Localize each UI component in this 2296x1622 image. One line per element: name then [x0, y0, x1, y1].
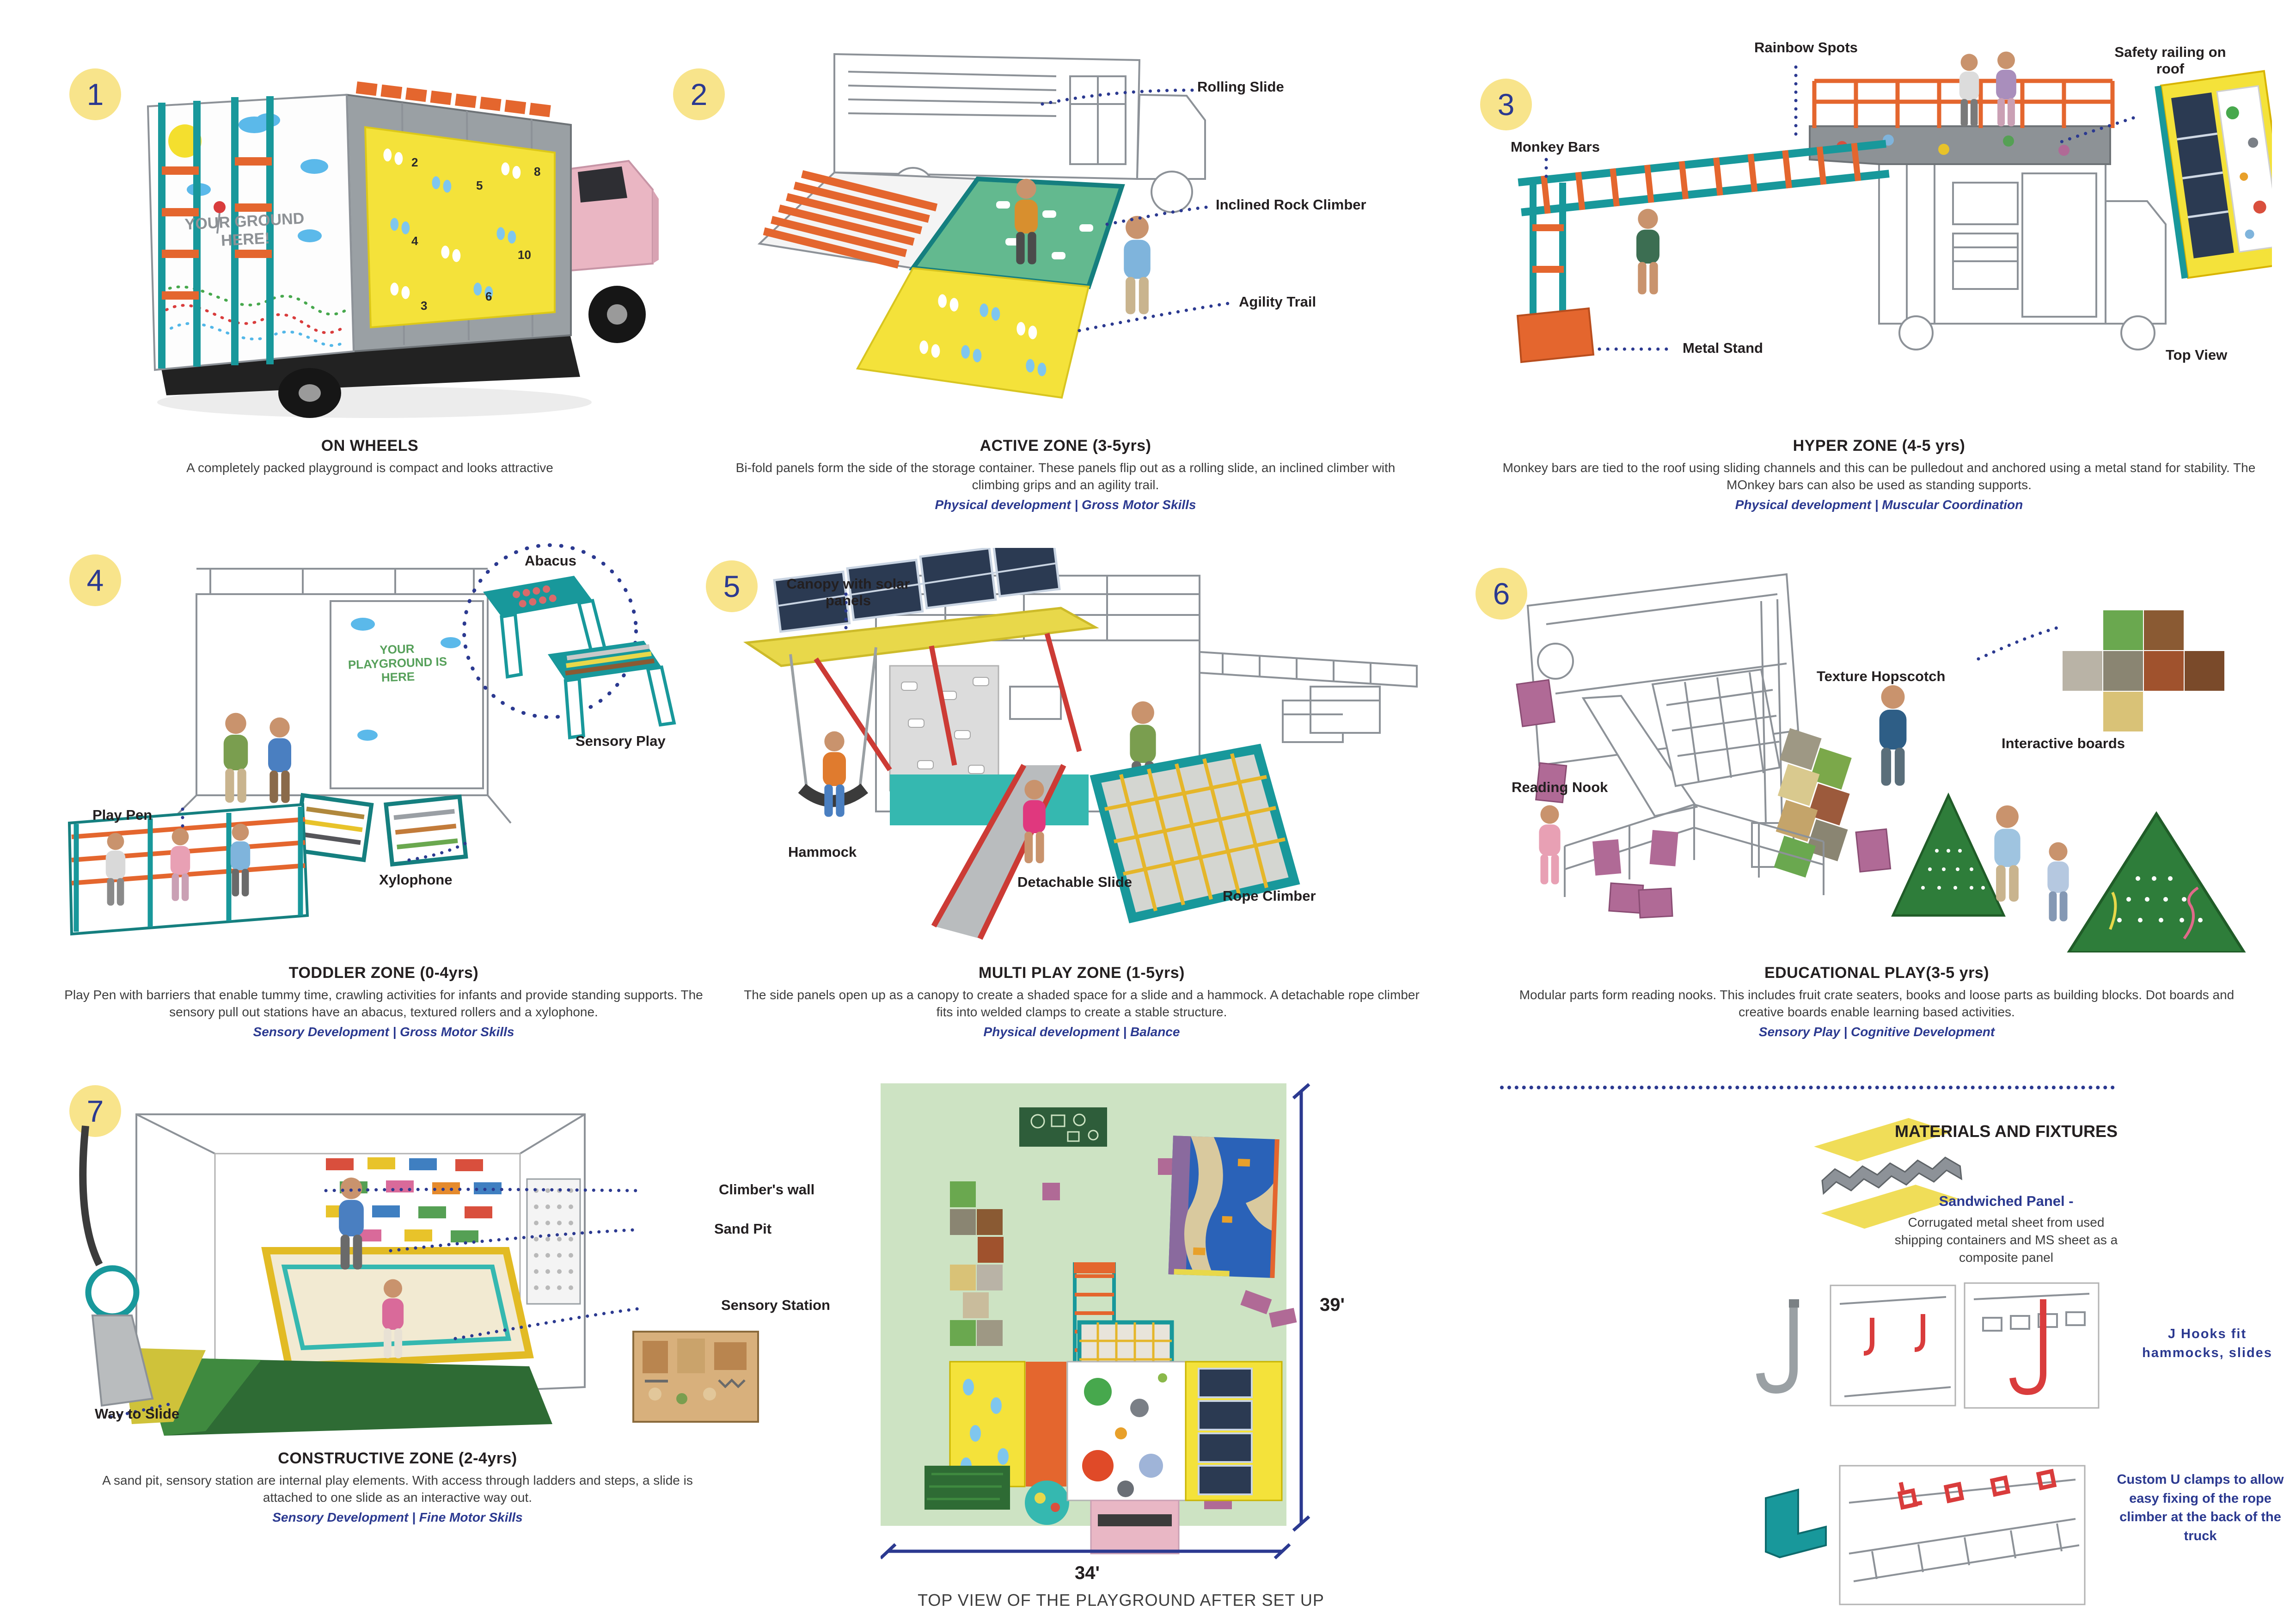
- child-in-nook: [1539, 805, 1560, 885]
- zone-skills: Physical development | Balance: [740, 1025, 1424, 1039]
- zone-description: Monkey bars are tied to the roof using s…: [1495, 460, 2263, 494]
- xylophone-table: [548, 638, 674, 739]
- hammock-strap: [83, 1126, 99, 1265]
- label-canopy-solar: Canopy with solar panels: [770, 576, 927, 609]
- materials-heading: MATERIALS AND FIXTURES: [1891, 1121, 2122, 1141]
- label-rainbow-spots: Rainbow Spots: [1754, 39, 1858, 56]
- label-xylophone: Xylophone: [379, 872, 452, 888]
- play-pen: [69, 805, 307, 934]
- toddler-figure: [2047, 842, 2069, 922]
- sandwiched-panel-desc: Corrugated metal sheet from used shippin…: [1886, 1214, 2126, 1266]
- label-play-pen: Play Pen: [92, 807, 152, 823]
- zone-title: HYPER ZONE (4-5 yrs): [1495, 437, 2263, 455]
- svg-text:5: 5: [476, 178, 483, 192]
- uclamps-note: Custom U clamps to allow easy fixing of …: [2112, 1470, 2288, 1545]
- label-detachable-slide: Detachable Slide: [1017, 874, 1133, 891]
- child-waving: [1994, 805, 2020, 902]
- dot-board-1: [1893, 795, 2004, 915]
- dotted-separator: [1500, 1086, 2115, 1089]
- truck-back-sign: YOUR GROUND HERE!: [184, 209, 306, 252]
- hyper-zone-illustration: [1491, 25, 2272, 432]
- active-zone-illustration: [719, 25, 1408, 428]
- leader-agility-trail: [1079, 303, 1232, 331]
- zone-description: A sand pit, sensory station are internal…: [83, 1472, 712, 1506]
- svg-text:8: 8: [534, 165, 540, 178]
- zone-title: EDUCATIONAL PLAY(3-5 yrs): [1500, 964, 2253, 982]
- label-safety-railing: Safety railing on roof: [2099, 44, 2242, 77]
- label-hammock: Hammock: [788, 844, 857, 860]
- balloon-graphic: [214, 201, 226, 213]
- label-rope-climber: Rope Climber: [1223, 888, 1316, 904]
- label-rolling-slide: Rolling Slide: [1197, 79, 1284, 95]
- child-running: [1880, 685, 1907, 786]
- leader-texture-hopscotch: [1978, 627, 2062, 659]
- truck-lineart: [159, 569, 511, 832]
- zone-title: TODDLER ZONE (0-4yrs): [44, 964, 723, 982]
- zone-description: Play Pen with barriers that enable tummy…: [44, 987, 723, 1021]
- label-top-view: Top View: [2166, 347, 2227, 363]
- zone-skills: Sensory Development | Fine Motor Skills: [83, 1510, 712, 1525]
- dot-board-2: [2069, 814, 2244, 952]
- svg-text:2: 2: [411, 155, 418, 169]
- truck-cab: [571, 161, 659, 343]
- label-agility-trail: Agility Trail: [1239, 294, 1316, 310]
- cab-topview: [1091, 1500, 1179, 1554]
- panel6-caption: EDUCATIONAL PLAY(3-5 yrs) Modular parts …: [1500, 964, 2253, 1039]
- top-view-mini: [2155, 71, 2272, 279]
- zone-skills: Physical development | Muscular Coordina…: [1495, 498, 2263, 512]
- sensory-pullout-boards: [295, 795, 465, 864]
- steps-lineart: [1283, 687, 1380, 742]
- label-monkey-bars: Monkey Bars: [1511, 139, 1600, 155]
- truck-lineart: [1879, 164, 2166, 350]
- label-metal-stand: Metal Stand: [1683, 340, 1763, 356]
- texture-swatches: [2063, 610, 2224, 731]
- zone-title: ACTIVE ZONE (3-5yrs): [723, 437, 1408, 455]
- panel4-caption: TODDLER ZONE (0-4yrs) Play Pen with barr…: [44, 964, 723, 1039]
- zone-title: ON WHEELS: [139, 437, 601, 455]
- label-abacus: Abacus: [525, 553, 576, 569]
- label-inclined-rock-climber: Inclined Rock Climber: [1216, 197, 1366, 213]
- label-texture-hopscotch: Texture Hopscotch: [1817, 668, 1945, 685]
- panel7-caption: CONSTRUCTIVE ZONE (2-4yrs) A sand pit, s…: [83, 1450, 712, 1525]
- detail-circle: [464, 545, 636, 717]
- panel5-caption: MULTI PLAY ZONE (1-5yrs) The side panels…: [740, 964, 1424, 1039]
- truck-side-sign: YOUR PLAYGROUND IS HERE: [342, 641, 454, 686]
- sensory-station-photo: [633, 1332, 758, 1422]
- zone-skills: Sensory Development | Gross Motor Skills: [44, 1025, 723, 1039]
- label-sensory-play: Sensory Play: [576, 733, 666, 750]
- zone-number: 1: [87, 77, 104, 112]
- zone-badge-1: 1: [69, 68, 121, 120]
- water-mat-topview: [1168, 1136, 1279, 1278]
- uclamp-icon: [1766, 1490, 1826, 1557]
- panel2-caption: ACTIVE ZONE (3-5yrs) Bi-fold panels form…: [723, 437, 1408, 512]
- svg-text:6: 6: [485, 289, 492, 303]
- svg-text:3: 3: [421, 299, 427, 313]
- child-on-slide: [1023, 780, 1046, 863]
- zone-description: Bi-fold panels form the side of the stor…: [723, 460, 1408, 494]
- zone-description: Modular parts form reading nooks. This i…: [1500, 987, 2253, 1021]
- child-figure: [1124, 216, 1151, 314]
- zone-description: The side panels open up as a canopy to c…: [740, 987, 1424, 1021]
- container-side-panel: 258 41036: [347, 95, 571, 351]
- svg-text:4: 4: [411, 234, 418, 248]
- label-interactive-boards: Interactive boards: [2002, 735, 2125, 752]
- label-climbers-wall: Climber's wall: [719, 1181, 814, 1198]
- uclamp-sketch: [1840, 1466, 2085, 1604]
- zone-skills: Sensory Play | Cognitive Development: [1500, 1025, 2253, 1039]
- zone-skills: Physical development | Gross Motor Skill…: [723, 498, 1408, 512]
- perforated-panel: [527, 1179, 580, 1304]
- dimension-height: 39': [1320, 1295, 1345, 1315]
- sand-pit: [266, 1251, 529, 1366]
- zone-title: CONSTRUCTIVE ZONE (2-4yrs): [83, 1450, 712, 1468]
- agility-trail-mat: [857, 268, 1089, 398]
- child-on-roof: [1959, 54, 1979, 126]
- zone-title: MULTI PLAY ZONE (1-5yrs): [740, 964, 1424, 982]
- jhook-icon: [1760, 1299, 1799, 1389]
- top-view-caption: TOP VIEW OF THE PLAYGROUND AFTER SET UP: [881, 1591, 1361, 1610]
- zone-badge-2: 2: [673, 68, 725, 120]
- panel1-caption: ON WHEELS A completely packed playground…: [139, 437, 601, 477]
- constructive-zone-illustration: [67, 1098, 760, 1440]
- jhooks-note: J Hooks fit hammocks, slides: [2131, 1325, 2284, 1362]
- svg-text:10: 10: [518, 248, 531, 262]
- dimension-width: 34': [1075, 1563, 1100, 1584]
- multi-play-illustration: [737, 548, 1426, 955]
- zone-description: A completely packed playground is compac…: [139, 460, 601, 477]
- label-way-to-slide: Way to Slide: [95, 1406, 179, 1422]
- label-reading-nook: Reading Nook: [1512, 779, 1608, 796]
- lattice-panel: [1653, 670, 1780, 786]
- orange-panel-topview: [1026, 1362, 1066, 1487]
- label-sand-pit: Sand Pit: [714, 1221, 771, 1237]
- educational-play-illustration: [1500, 546, 2258, 952]
- sandwiched-panel-title: Sandwiched Panel -: [1891, 1193, 2122, 1210]
- top-view-plan: [881, 1063, 1361, 1572]
- monkey-beam-lineart: [1200, 652, 1417, 687]
- teal-half-wall: [890, 774, 1089, 825]
- jhook-sketch-2: [1965, 1283, 2099, 1408]
- leader-rock-climber: [1107, 207, 1211, 224]
- child-on-roof: [1996, 51, 2016, 126]
- child-hanging: [1636, 209, 1659, 295]
- label-sensory-station: Sensory Station: [721, 1297, 830, 1314]
- playground-design-board: 1 2 3 4 5 6 7 258: [0, 0, 2296, 1622]
- panel3-caption: HYPER ZONE (4-5 yrs) Monkey bars are tie…: [1495, 437, 2263, 512]
- jhook-sketch-1: [1831, 1285, 1955, 1406]
- zone-number: 2: [691, 77, 708, 112]
- round-mat-topview: [1025, 1481, 1069, 1525]
